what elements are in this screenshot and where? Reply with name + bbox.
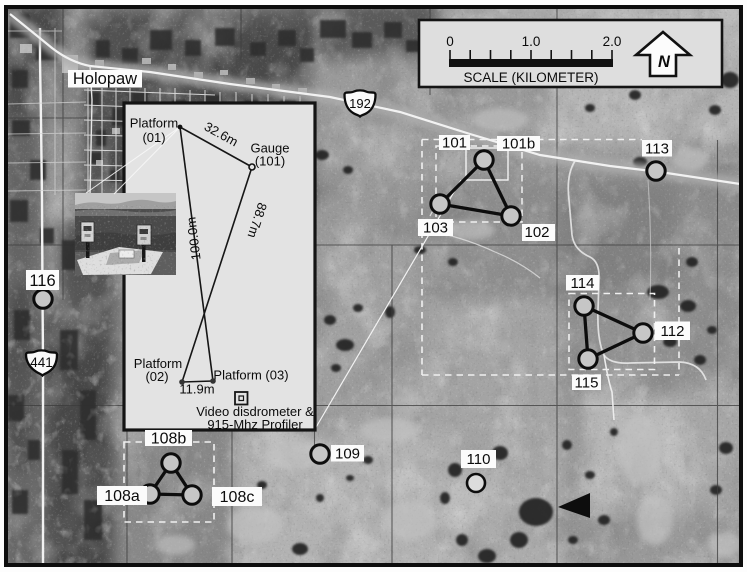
svg-text:0: 0 <box>446 34 454 49</box>
svg-text:Platform (03): Platform (03) <box>213 368 288 383</box>
svg-text:102: 102 <box>524 224 549 241</box>
svg-text:(101): (101) <box>255 154 285 169</box>
svg-text:(01): (01) <box>142 130 165 145</box>
svg-text:N: N <box>658 53 671 71</box>
svg-text:110: 110 <box>467 451 491 468</box>
svg-text:101b: 101b <box>502 135 535 152</box>
svg-text:441: 441 <box>30 355 53 370</box>
svg-text:SCALE (KILOMETER): SCALE (KILOMETER) <box>463 70 598 85</box>
svg-text:915-Mhz Profiler: 915-Mhz Profiler <box>207 417 303 432</box>
svg-text:1.0: 1.0 <box>522 34 541 49</box>
svg-text:(02): (02) <box>145 369 168 384</box>
svg-text:Platform: Platform <box>130 116 178 131</box>
svg-text:116: 116 <box>29 272 55 290</box>
svg-text:114: 114 <box>571 275 595 292</box>
svg-text:101: 101 <box>442 134 467 151</box>
svg-text:115: 115 <box>575 374 599 391</box>
svg-text:109: 109 <box>335 445 360 462</box>
svg-text:11.9m: 11.9m <box>179 382 214 397</box>
svg-text:108c: 108c <box>220 489 255 506</box>
svg-text:103: 103 <box>423 220 448 237</box>
svg-text:192: 192 <box>349 96 371 111</box>
svg-text:113: 113 <box>645 140 669 157</box>
svg-text:2.0: 2.0 <box>603 34 622 49</box>
svg-text:112: 112 <box>661 323 685 340</box>
svg-text:108a: 108a <box>104 488 140 505</box>
svg-text:Holopaw: Holopaw <box>73 70 137 88</box>
svg-text:108b: 108b <box>151 431 187 448</box>
